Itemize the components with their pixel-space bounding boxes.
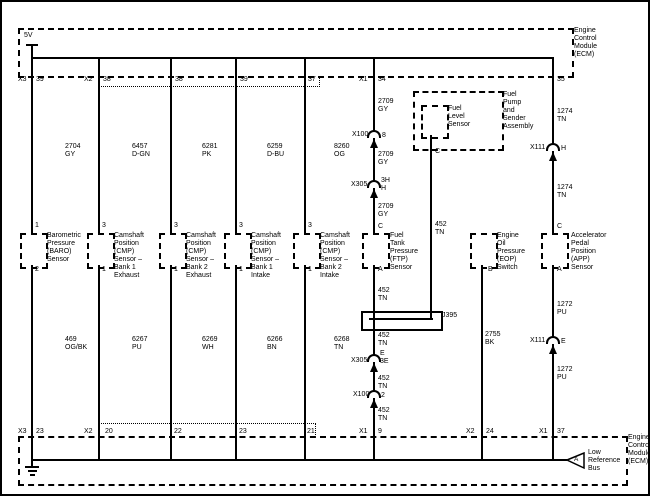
ecm-top-label: Engine Control Module (ECM) bbox=[574, 27, 597, 59]
wire-label: 2709 GY bbox=[378, 151, 394, 167]
bottom-pin-number: 23 bbox=[36, 428, 44, 436]
wire-label: 6457 D-GN bbox=[132, 143, 150, 159]
wire bbox=[430, 135, 432, 320]
wire-label: 6269 WH bbox=[202, 336, 218, 352]
bottom-pin-number: 9 bbox=[378, 428, 382, 436]
device-pin: 1 bbox=[174, 266, 178, 274]
inline-connector-arrow-icon bbox=[370, 189, 378, 198]
connector-pin: 2 bbox=[381, 392, 385, 400]
inline-connector-arrow-icon bbox=[370, 139, 378, 148]
top-pin-conn: X1 bbox=[359, 76, 368, 84]
top-pin-number: 37 bbox=[308, 76, 316, 84]
bottom-pin-conn: X1 bbox=[539, 428, 548, 436]
device-pin: 3 bbox=[102, 222, 106, 230]
connector-pin: E bbox=[561, 338, 566, 346]
inline-connector-icon bbox=[367, 354, 381, 362]
bottom-pin-conn: X3 bbox=[18, 428, 27, 436]
device-label: Camshaft Position (CMP) Sensor – Bank 2 … bbox=[186, 232, 216, 280]
ecm-bottom-label: Engine Control Module (ECM) bbox=[628, 434, 650, 466]
fuel-pump-assembly-label: Fuel Pump and Sender Assembly bbox=[503, 91, 533, 131]
cmp-b2-intake-box bbox=[293, 233, 321, 269]
bottom-pin-number: 24 bbox=[486, 428, 494, 436]
inline-connector-arrow-icon bbox=[370, 363, 378, 372]
wire-label: 452 TN bbox=[378, 332, 390, 348]
bottom-pin-conn: X2 bbox=[466, 428, 475, 436]
top-pin-number: 35 bbox=[557, 76, 565, 84]
connector-pin: H bbox=[561, 145, 566, 153]
device-label: Camshaft Position (CMP) Sensor – Bank 1 … bbox=[251, 232, 281, 280]
bus-label: Low Reference Bus bbox=[588, 449, 620, 473]
connector-name: X111 bbox=[530, 337, 545, 345]
wire-label: 1274 TN bbox=[557, 184, 573, 200]
wire-label: 452 TN bbox=[378, 287, 390, 303]
fuel-level-sensor-label: Fuel Level Sensor bbox=[448, 105, 470, 129]
wire-label: 2709 GY bbox=[378, 203, 394, 219]
connector-pin: E 3E bbox=[380, 350, 389, 366]
x2-connector-bracket-bottom bbox=[98, 423, 316, 435]
wire bbox=[373, 74, 375, 233]
wire bbox=[31, 265, 33, 460]
inline-connector-icon bbox=[367, 130, 381, 138]
wire-label: 6259 D-BU bbox=[267, 143, 284, 159]
wire-label: 1272 PU bbox=[557, 366, 573, 382]
cmp-b2-exhaust-box bbox=[159, 233, 187, 269]
inline-connector-icon bbox=[367, 180, 381, 188]
wire bbox=[304, 74, 306, 233]
cmp-b1-intake-box bbox=[224, 233, 252, 269]
wire bbox=[98, 74, 100, 233]
top-pin-number: 39 bbox=[240, 76, 248, 84]
device-pin: 3 bbox=[239, 222, 243, 230]
top-pin-conn: X2 bbox=[84, 76, 93, 84]
connector-name: X305 bbox=[351, 181, 367, 189]
inline-connector-icon bbox=[546, 336, 560, 344]
fuel-level-sensor-box bbox=[421, 105, 449, 139]
bottom-pin-conn: X2 bbox=[84, 428, 93, 436]
device-pin: C bbox=[435, 148, 440, 156]
wire bbox=[552, 265, 554, 460]
wire-label: 452 TN bbox=[378, 407, 390, 423]
device-pin: 1 bbox=[35, 222, 39, 230]
bottom-pin-number: 37 bbox=[557, 428, 565, 436]
wire-label: 469 OG/BK bbox=[65, 336, 87, 352]
device-label: Fuel Tank Pressure (FTP) Sensor bbox=[390, 232, 418, 272]
inline-connector-arrow-icon bbox=[549, 152, 557, 161]
inline-connector-arrow-icon bbox=[549, 345, 557, 354]
device-label: Camshaft Position (CMP) Sensor – Bank 2 … bbox=[320, 232, 350, 280]
eop-switch-box bbox=[470, 233, 498, 269]
wire-label: 1272 PU bbox=[557, 301, 573, 317]
top-pin-conn: X3 bbox=[18, 76, 27, 84]
bottom-pin-number: 22 bbox=[174, 428, 182, 436]
wire-label: 452 TN bbox=[378, 375, 390, 391]
device-pin: 3 bbox=[174, 222, 178, 230]
wire bbox=[481, 265, 483, 460]
inline-connector-arrow-icon bbox=[370, 399, 378, 408]
device-label: Camshaft Position (CMP) Sensor – Bank 1 … bbox=[114, 232, 144, 280]
bottom-pin-number: 23 bbox=[239, 428, 247, 436]
bus-tag: A bbox=[574, 456, 578, 464]
top-pin-number: 38 bbox=[175, 76, 183, 84]
device-pin: A bbox=[378, 266, 383, 274]
wire-label: 2755 BK bbox=[485, 331, 501, 347]
connector-name: X100 bbox=[353, 391, 369, 399]
top-pin-number: 34 bbox=[378, 76, 386, 84]
connector-name: X305 bbox=[351, 357, 367, 365]
wire-label: 6266 BN bbox=[267, 336, 283, 352]
wire-label: 452 TN bbox=[435, 221, 447, 237]
device-pin: 1 bbox=[239, 266, 243, 274]
connector-pin: 3H H bbox=[381, 177, 390, 193]
wire-label: 1274 TN bbox=[557, 108, 573, 124]
device-pin: 3 bbox=[308, 222, 312, 230]
device-pin: B bbox=[488, 266, 493, 274]
wiring-diagram: Engine Control Module (ECM) 5V X3 39 X2 … bbox=[0, 0, 650, 496]
connector-pin: 8 bbox=[382, 132, 386, 140]
top-pin-number: 39 bbox=[36, 76, 44, 84]
connector-name: X100 bbox=[352, 131, 368, 139]
device-label: Accelerator Pedal Position (APP) Sensor bbox=[571, 232, 606, 272]
supply-5v-label: 5V bbox=[24, 32, 33, 40]
device-label: Barometric Pressure (BARO) Sensor bbox=[47, 232, 81, 264]
app-sensor-box bbox=[541, 233, 569, 269]
wire-label: 6281 PK bbox=[202, 143, 218, 159]
top-pin-number: 38 bbox=[103, 76, 111, 84]
inline-connector-icon bbox=[546, 143, 560, 151]
baro-sensor-box bbox=[20, 233, 48, 269]
bottom-pin-number: 20 bbox=[105, 428, 113, 436]
wire-label: 2704 GY bbox=[65, 143, 81, 159]
device-pin: 1 bbox=[308, 266, 312, 274]
bottom-pin-number: 21 bbox=[307, 428, 315, 436]
wire bbox=[235, 74, 237, 233]
wire-label: 2709 GY bbox=[378, 98, 394, 114]
wire bbox=[31, 57, 33, 233]
wire-label: 6267 PU bbox=[132, 336, 148, 352]
splice-label: J395 bbox=[442, 312, 457, 320]
wire-label: 8260 OG bbox=[334, 143, 350, 159]
device-pin: 2 bbox=[35, 266, 39, 274]
device-pin: C bbox=[378, 223, 383, 231]
ftp-sensor-box bbox=[362, 233, 390, 269]
wire-label: 6268 TN bbox=[334, 336, 350, 352]
device-label: Engine Oil Pressure (EOP) Switch bbox=[497, 232, 525, 272]
device-pin: A bbox=[557, 266, 562, 274]
bottom-pin-conn: X1 bbox=[359, 428, 368, 436]
splice-j395-box bbox=[361, 311, 443, 331]
ecm-bottom-box bbox=[18, 436, 628, 486]
wire bbox=[170, 74, 172, 233]
device-pin: C bbox=[557, 223, 562, 231]
cmp-b1-exhaust-box bbox=[87, 233, 115, 269]
connector-name: X111 bbox=[530, 144, 545, 152]
device-pin: 1 bbox=[102, 266, 106, 274]
ecm-top-box bbox=[18, 28, 574, 78]
x2-connector-bracket-top bbox=[98, 76, 320, 87]
